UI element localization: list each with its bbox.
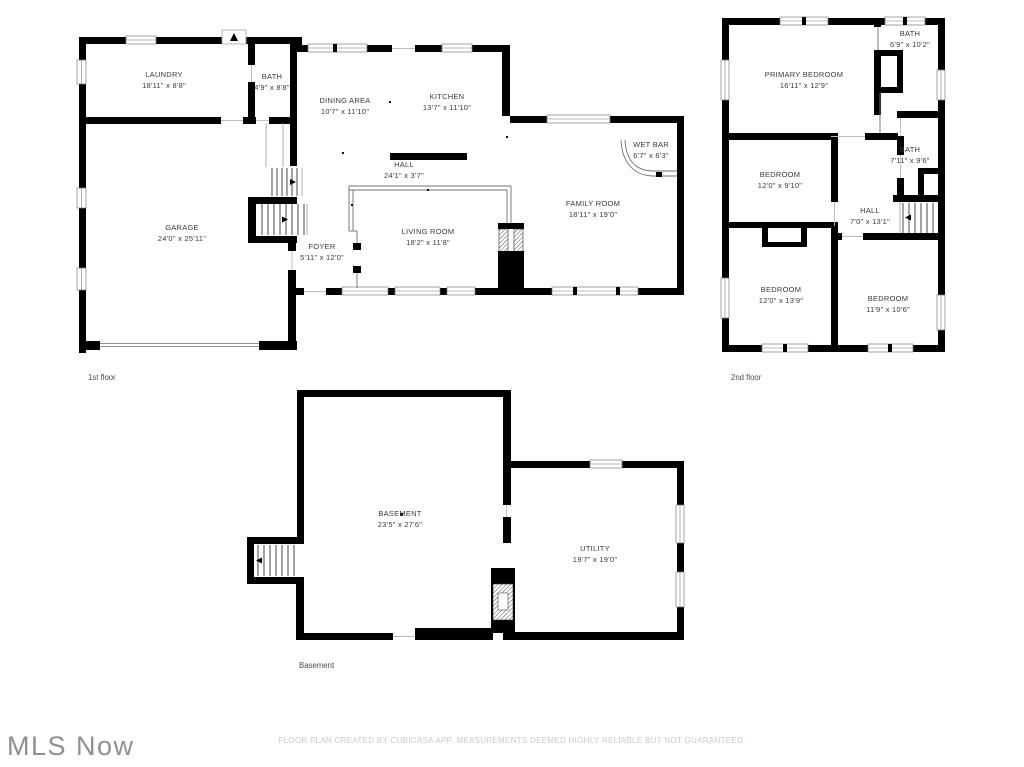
first-floor-room-labels: LAUNDRY 18'11" x 8'8" BATH 4'9" x 8'8" D… [142, 70, 669, 262]
floorplan-basement: BASEMENT 23'5" x 27'6" UTILITY 19'7" x 1… [247, 390, 684, 670]
room-dims-bath-mid: 7'11" x 9'6" [890, 156, 929, 165]
room-dims-dining-area: 10'7" x 11'10" [321, 107, 369, 116]
stair-arrow-icon [905, 215, 911, 221]
basement-walls [247, 390, 684, 640]
room-label-utility: UTILITY [580, 544, 610, 553]
disclaimer-text: FLOOR PLAN CREATED BY CUBICASA APP. MEAS… [0, 736, 1024, 745]
floor-plan-page: { "colors": {"wall": "#000000", "room_te… [0, 0, 1024, 767]
room-dims-utility: 19'7" x 19'0" [573, 555, 617, 564]
room-label-bath: BATH [262, 72, 282, 81]
room-dims-laundry: 18'11" x 8'8" [142, 81, 186, 90]
basement-fireplace [491, 568, 515, 633]
room-dims-bath-upper: 6'9" x 10'2" [890, 40, 930, 49]
room-label-living-room: LIVING ROOM [402, 227, 455, 236]
stair-arrow-icon [256, 558, 262, 564]
room-label-bath-mid: BATH [900, 145, 920, 154]
room-label-garage: GARAGE [165, 223, 199, 232]
floorplan-canvas: LAUNDRY 18'11" x 8'8" BATH 4'9" x 8'8" D… [0, 0, 1024, 767]
room-dims-bedroom-se: 11'9" x 10'6" [866, 305, 910, 314]
first-floor-caption: 1st floor [88, 373, 116, 382]
mls-now-logo: MLS Now [7, 731, 135, 762]
second-floor-staircase [900, 202, 933, 233]
room-label-bedroom-sw: BEDROOM [761, 285, 802, 294]
room-label-bedroom-mid: BEDROOM [760, 170, 801, 179]
room-label-foyer: FOYER [308, 242, 335, 251]
room-dims-foyer: 5'11" x 12'0" [300, 253, 344, 262]
stair-arrow-icon [290, 179, 296, 185]
room-dims-wet-bar: 6'7" x 6'3" [633, 151, 669, 160]
second-floor-caption: 2nd floor [731, 373, 762, 382]
basement-caption: Basement [299, 661, 335, 670]
basement-windows [590, 460, 684, 607]
room-dims-family-room: 18'11" x 19'0" [569, 210, 617, 219]
first-floor-fireplace [498, 223, 524, 290]
floorplan-first-floor: LAUNDRY 18'11" x 8'8" BATH 4'9" x 8'8" D… [77, 30, 684, 382]
second-floor-room-labels: BATH 6'9" x 10'2" PRIMARY BEDROOM 16'11"… [758, 29, 930, 314]
living-room-partition [349, 186, 511, 288]
floorplan-second-floor: BATH 6'9" x 10'2" PRIMARY BEDROOM 16'11"… [721, 17, 945, 382]
room-label-hall: HALL [394, 160, 414, 169]
room-dims-bedroom-mid: 12'0" x 9'10" [758, 181, 802, 190]
room-dims-garage: 24'0" x 25'11" [158, 234, 206, 243]
room-label-basement: BASEMENT [378, 509, 421, 518]
basement-staircase [256, 545, 294, 576]
room-dims-bedroom-sw: 12'0" x 13'9" [759, 296, 803, 305]
room-label-hall-2nd: HALL [860, 206, 880, 215]
room-dims-hall-2nd: 7'0" x 13'1" [850, 217, 890, 226]
room-label-wet-bar: WET BAR [633, 140, 669, 149]
second-floor-walls [722, 18, 945, 352]
room-label-bedroom-se: BEDROOM [868, 294, 909, 303]
room-dims-bath: 4'9" x 8'8" [254, 83, 290, 92]
room-label-laundry: LAUNDRY [145, 70, 182, 79]
stair-arrow-icon [282, 217, 288, 223]
room-dims-living-room: 18'2" x 11'8" [406, 238, 450, 247]
room-dims-basement: 23'5" x 27'6" [378, 520, 422, 529]
basement-room-labels: BASEMENT 23'5" x 27'6" UTILITY 19'7" x 1… [378, 509, 617, 564]
room-dims-primary-bedroom: 16'11" x 12'9" [780, 81, 828, 90]
garage-door [100, 344, 259, 347]
room-label-kitchen: KITCHEN [430, 92, 465, 101]
room-dims-hall: 24'1" x 3'7" [384, 171, 424, 180]
exterior-door-notch [222, 30, 246, 44]
room-label-bath-upper: BATH [900, 29, 920, 38]
room-label-primary-bedroom: PRIMARY BEDROOM [765, 70, 844, 79]
room-label-family-room: FAMILY ROOM [566, 199, 620, 208]
room-label-dining-area: DINING AREA [319, 96, 370, 105]
room-dims-kitchen: 13'7" x 11'10" [423, 103, 471, 112]
first-floor-staircase [262, 123, 307, 235]
